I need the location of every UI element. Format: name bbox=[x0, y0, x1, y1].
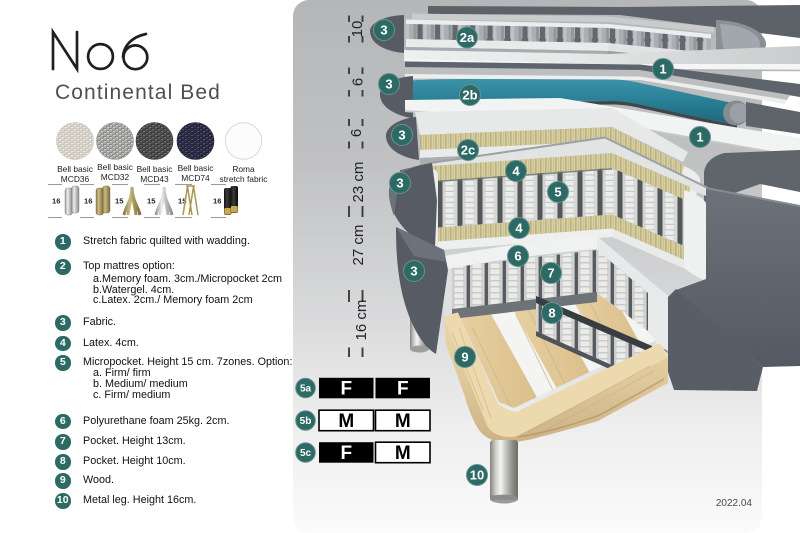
svg-text:F: F bbox=[340, 379, 352, 400]
svg-text:6: 6 bbox=[348, 129, 365, 137]
svg-text:5b: 5b bbox=[300, 416, 312, 427]
svg-text:3: 3 bbox=[398, 128, 405, 143]
svg-text:23 cm: 23 cm bbox=[350, 162, 367, 203]
svg-text:6: 6 bbox=[514, 249, 521, 264]
svg-text:M: M bbox=[395, 443, 411, 464]
svg-text:5: 5 bbox=[554, 185, 561, 200]
svg-text:5a: 5a bbox=[300, 384, 312, 395]
svg-text:16 cm: 16 cm bbox=[353, 300, 370, 341]
svg-text:6: 6 bbox=[350, 78, 367, 86]
svg-text:3: 3 bbox=[410, 264, 417, 279]
svg-text:2a: 2a bbox=[460, 30, 475, 45]
svg-text:7: 7 bbox=[547, 266, 554, 281]
svg-text:2b: 2b bbox=[462, 88, 477, 103]
svg-text:4: 4 bbox=[512, 164, 520, 179]
svg-text:3: 3 bbox=[380, 23, 387, 38]
svg-text:5c: 5c bbox=[300, 448, 312, 459]
svg-text:1: 1 bbox=[696, 130, 703, 145]
svg-text:M: M bbox=[395, 411, 411, 432]
svg-text:F: F bbox=[340, 443, 352, 464]
svg-text:9: 9 bbox=[461, 350, 468, 365]
svg-text:10: 10 bbox=[349, 21, 366, 38]
svg-text:M: M bbox=[338, 411, 354, 432]
svg-text:27 cm: 27 cm bbox=[350, 225, 367, 266]
svg-text:4: 4 bbox=[515, 221, 523, 236]
svg-text:1: 1 bbox=[659, 62, 666, 77]
svg-text:3: 3 bbox=[396, 176, 403, 191]
svg-text:3: 3 bbox=[385, 77, 392, 92]
svg-text:2c: 2c bbox=[461, 143, 475, 158]
svg-text:8: 8 bbox=[548, 306, 555, 321]
svg-text:F: F bbox=[397, 379, 409, 400]
svg-text:2022.04: 2022.04 bbox=[716, 498, 753, 509]
svg-text:10: 10 bbox=[470, 468, 484, 483]
